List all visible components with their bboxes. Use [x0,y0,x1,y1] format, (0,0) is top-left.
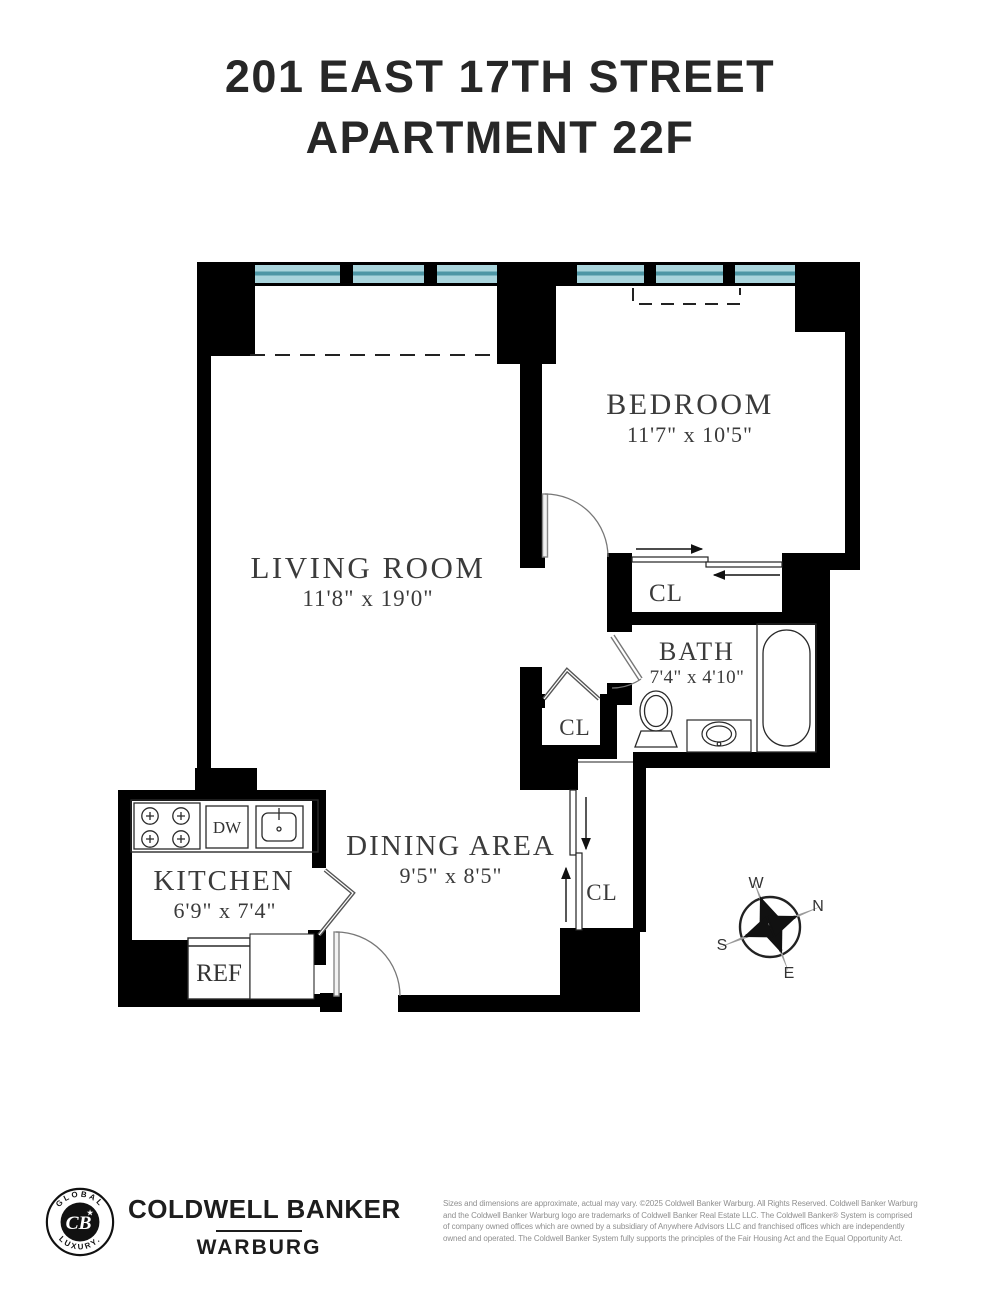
compass-west-label: W [748,875,764,892]
kitchen-label: KITCHEN [153,865,294,897]
floor-plan-drawing: LIVING ROOM 11'8" x 19'0" BEDROOM 11'7" … [0,0,1000,1293]
kitchen-cabinet [250,934,314,999]
bathtub-icon [757,624,816,752]
window-icon [353,262,424,286]
disclaimer-line: Sizes and dimensions are approximate, ac… [443,1198,963,1210]
bath-door [611,635,642,688]
compass-north-label: N [812,898,824,915]
kitchen-sink-icon [256,806,303,848]
global-luxury-badge: GLOBAL LUXURY. CB ★ [44,1186,116,1263]
disclaimer-text: Sizes and dimensions are approximate, ac… [443,1198,963,1244]
window-icon [437,262,497,286]
compass-east-label: E [784,965,795,982]
brand-logo: COLDWELL BANKER WARBURG [128,1194,390,1260]
bedroom-door [543,494,609,557]
bedroom-closet-sliding-door [632,549,782,575]
brand-subname: WARBURG [128,1236,390,1260]
refrigerator-label: REF [196,960,242,987]
living-room-label: LIVING ROOM [250,550,485,585]
entry-closet-label: CL [586,880,617,905]
kitchen-door [319,870,353,935]
entry-door [334,932,400,996]
bath-sink-icon [687,720,751,752]
stove-icon [134,803,200,849]
disclaimer-line: and the Coldwell Banker Warburg logo are… [443,1210,963,1222]
brand-divider [216,1230,302,1232]
window-icon [255,262,340,286]
disclaimer-line: owned and operated. The Coldwell Banker … [443,1233,963,1245]
dining-area-dimensions: 9'5" x 8'5" [400,863,503,888]
dining-area-label: DINING AREA [346,830,556,862]
toilet-icon [635,691,677,747]
badge-star-icon: ★ [86,1208,94,1218]
window-icon [577,262,644,286]
kitchen-dimensions: 6'9" x 7'4" [174,898,277,923]
bedroom-dimensions: 11'7" x 10'5" [627,422,753,447]
floor-plan-page: 201 EAST 17TH STREET APARTMENT 22F [0,0,1000,1293]
brand-name: COLDWELL BANKER [128,1194,390,1225]
compass-rose-icon: W N S E [717,875,824,982]
hall-closet-label: CL [559,715,590,740]
window-icon [656,262,723,286]
dishwasher-label: DW [213,818,242,837]
footer: GLOBAL LUXURY. CB ★ COLDWELL BANKER WARB… [0,1180,1000,1293]
window-icon [735,262,795,286]
compass-south-label: S [717,937,728,954]
bath-dimensions: 7'4" x 4'10" [650,667,745,688]
soffit-dashed-lines [250,288,740,355]
living-room-dimensions: 11'8" x 19'0" [302,586,433,611]
disclaimer-line: of company owned offices which are owned… [443,1221,963,1233]
bedroom-closet-label: CL [649,580,683,607]
bath-label: BATH [659,637,735,666]
hall-closet-bifold-door [544,670,599,699]
bedroom-label: BEDROOM [606,388,774,421]
